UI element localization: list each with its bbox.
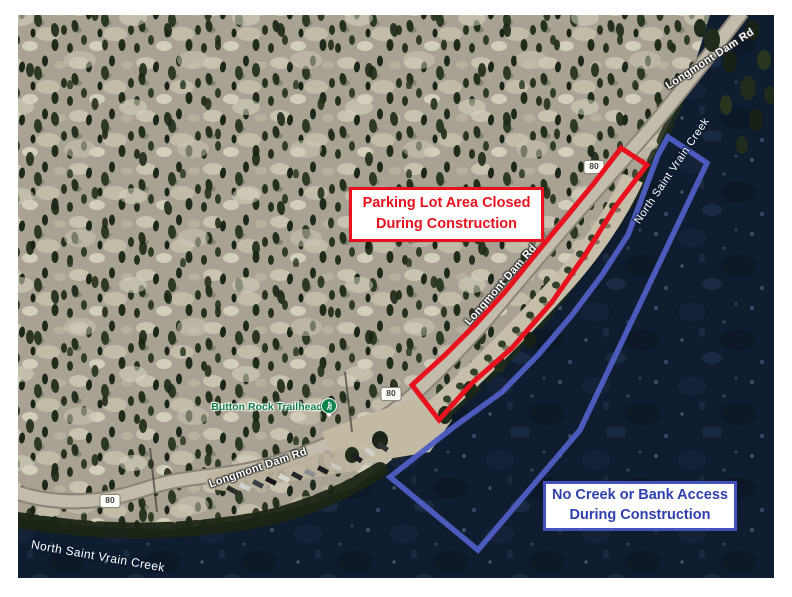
trailhead-label: Button Rock Trailhead <box>211 401 322 413</box>
no-creek-access-line1: No Creek or Bank Access <box>546 486 734 506</box>
no-creek-access-callout: No Creek or Bank Access During Construct… <box>543 481 737 531</box>
route-80-shield-left: 80 <box>100 494 121 508</box>
route-80-shield-top: 80 <box>584 160 605 174</box>
annotated-map-page: 80 80 80 Longmont Dam Rd Longmont Dam Rd… <box>0 0 792 597</box>
parking-closed-callout: Parking Lot Area Closed During Construct… <box>349 187 544 242</box>
no-creek-access-line2: During Construction <box>546 506 734 526</box>
parking-closed-line2: During Construction <box>352 214 541 235</box>
parking-closed-line1: Parking Lot Area Closed <box>352 193 541 214</box>
hiker-icon <box>324 401 334 411</box>
route-80-shield-mid: 80 <box>381 387 402 401</box>
trailhead-icon <box>321 398 337 414</box>
